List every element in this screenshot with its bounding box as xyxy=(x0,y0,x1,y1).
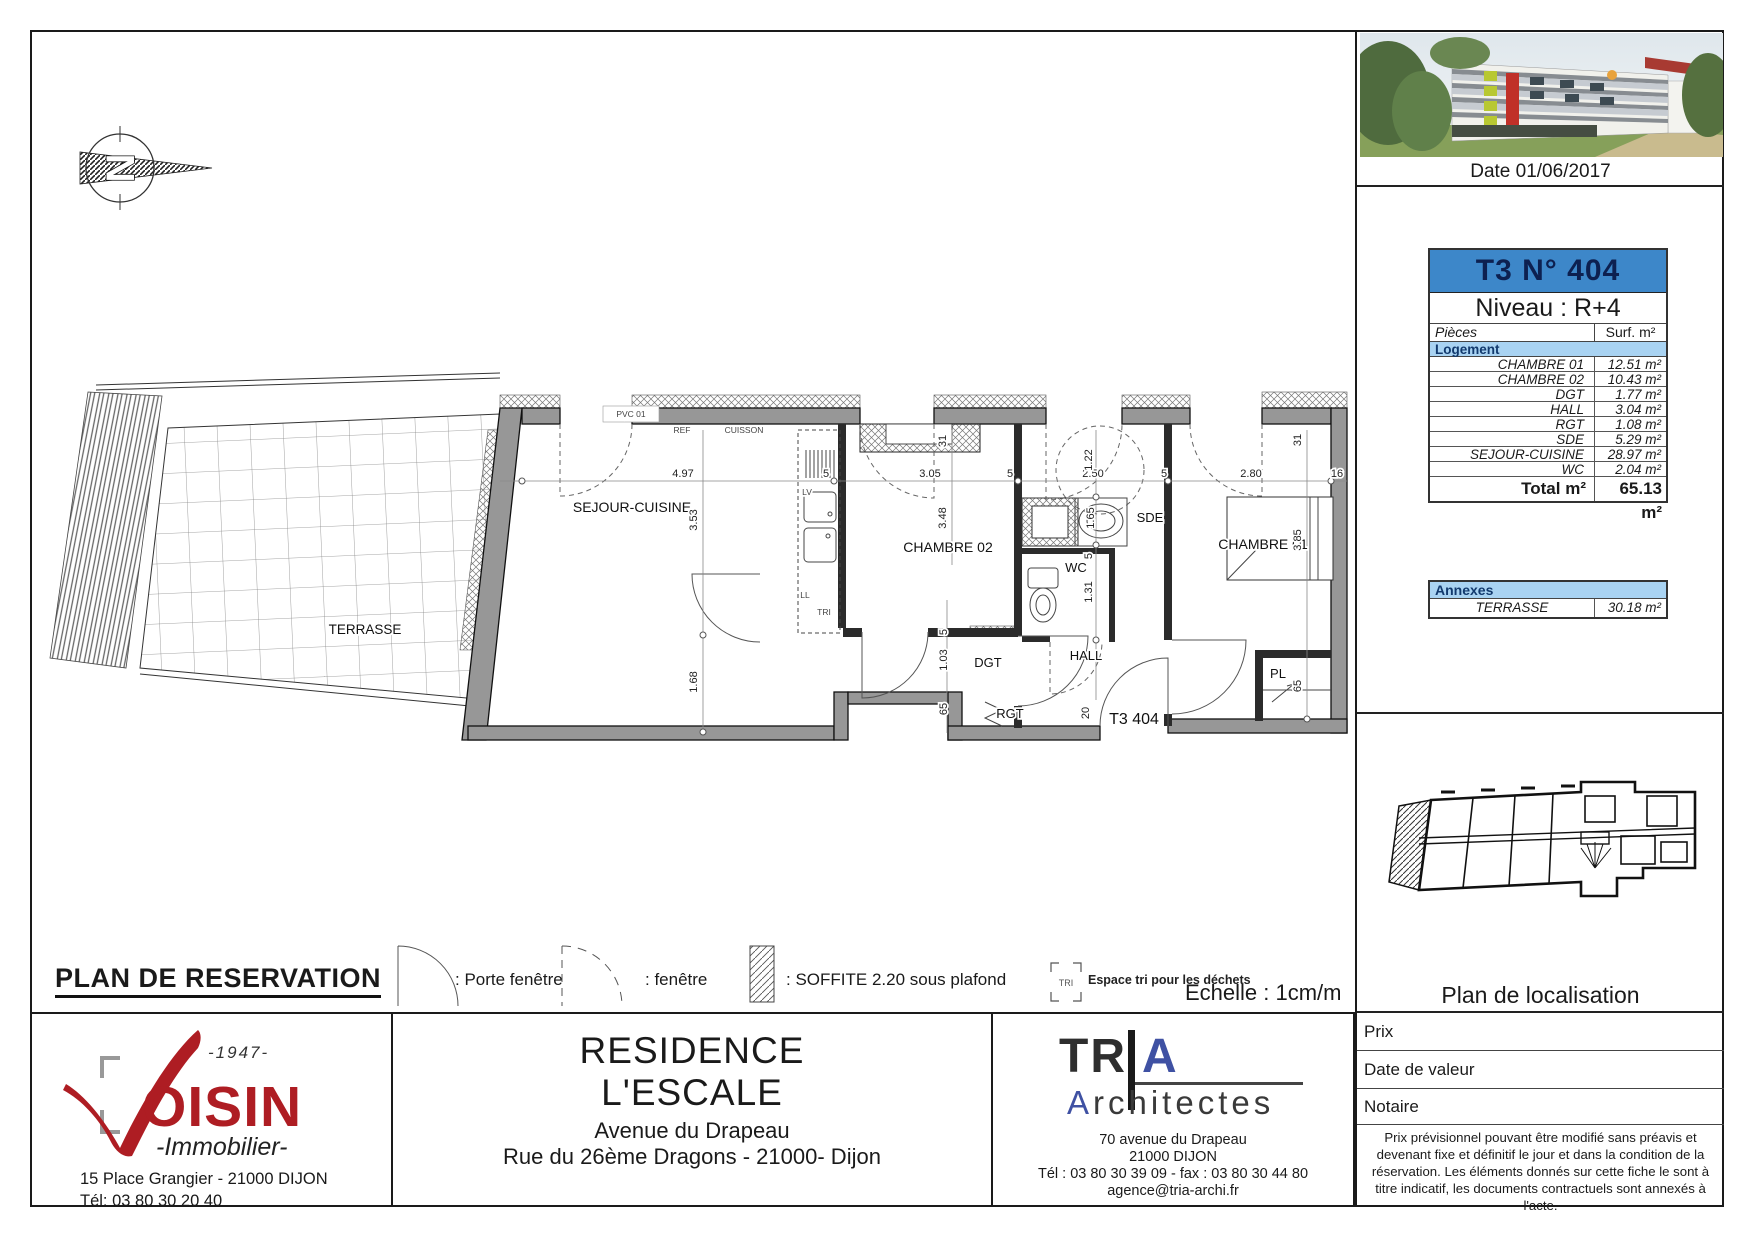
price-info-rows: PrixDate de valeurNotaire Prix prévision… xyxy=(1357,1011,1724,1207)
annotation: LV xyxy=(802,487,812,497)
dimension: 1.22 xyxy=(1083,449,1095,470)
table-row: HALL3.04 m² xyxy=(1430,402,1666,417)
room-name: SDE xyxy=(1430,432,1594,446)
dimension: 31 xyxy=(1292,434,1304,446)
room-name: DGT xyxy=(1430,387,1594,401)
dimension: 3.05 xyxy=(919,468,940,480)
unit-surface-table: T3 N° 404 Niveau : R+4 Pièces Surf. m² L… xyxy=(1428,248,1668,503)
fenetre-icon xyxy=(548,942,628,1008)
disclaimer-text: Prix prévisionnel pouvant être modifié s… xyxy=(1357,1125,1724,1214)
unit-level: Niveau : R+4 xyxy=(1430,293,1666,324)
voisin-block: -1947- OISIN -Immobilier- 15 Place Grang… xyxy=(30,1012,393,1207)
annotation: CUISSON xyxy=(725,425,764,435)
tri-icon: TRI xyxy=(1048,960,1084,1004)
annotation: LL xyxy=(800,590,810,600)
voisin-logo: -1947- OISIN -Immobilier- xyxy=(58,1022,368,1162)
svg-text:OISIN: OISIN xyxy=(142,1075,302,1139)
residence-block: RESIDENCE L'ESCALE Avenue du Drapeau Rue… xyxy=(393,1012,993,1207)
legend-soffite: : SOFFITE 2.20 sous plafond xyxy=(786,970,1006,990)
room-name: CHAMBRE 01 xyxy=(1430,357,1594,371)
room-name: SEJOUR-CUISINE xyxy=(1430,447,1594,461)
legend-porte-fenetre: : Porte fenêtre xyxy=(455,970,563,990)
svg-text:A: A xyxy=(1142,1030,1177,1083)
annotation: PVC 01 xyxy=(616,409,646,419)
dimension: 1.68 xyxy=(688,671,700,692)
dimension: 65 xyxy=(1292,680,1304,692)
tria-address-2: 21000 DIJON xyxy=(993,1149,1353,1165)
room-surface: 10.43 m² xyxy=(1594,372,1666,386)
door-arcs xyxy=(692,574,1246,726)
dimension: 4.97 xyxy=(672,468,693,480)
table-row: SEJOUR-CUISINE28.97 m² xyxy=(1430,447,1666,462)
exterior-walls xyxy=(462,408,1347,740)
location-plan xyxy=(1385,772,1707,912)
dimension: 16 xyxy=(1331,468,1343,480)
dimension: 20 xyxy=(1080,707,1092,719)
table-row: RGT1.08 m² xyxy=(1430,417,1666,432)
dimension-values: 4.9753.0552.5052.8016 xyxy=(672,468,1343,480)
terrace-area xyxy=(50,373,500,706)
svg-text:N: N xyxy=(99,154,143,183)
table-row: CHAMBRE 0112.51 m² xyxy=(1430,357,1666,372)
room-name: CHAMBRE 02 xyxy=(1430,372,1594,386)
dimension: 5 xyxy=(1083,553,1095,559)
room-label: SEJOUR-CUISINE xyxy=(573,499,691,515)
room-rows: CHAMBRE 0112.51 m²CHAMBRE 0210.43 m²DGT1… xyxy=(1430,357,1666,477)
tria-logo: TR A A rchitectes xyxy=(1041,1026,1307,1126)
unit-title: T3 N° 404 xyxy=(1430,250,1666,293)
tria-email: agence@tria-archi.fr xyxy=(993,1183,1353,1199)
total-value: 65.13 m² xyxy=(1594,477,1666,501)
room-surface: 1.08 m² xyxy=(1594,417,1666,431)
annexes-title: Annexes xyxy=(1430,582,1666,599)
legend-fenetre: : fenêtre xyxy=(645,970,707,990)
info-row-date-de-valeur: Date de valeur xyxy=(1357,1051,1724,1089)
col-surface: Surf. m² xyxy=(1594,324,1666,341)
room-label: PL xyxy=(1270,666,1286,681)
residence-address-2: Rue du 26ème Dragons - 21000- Dijon xyxy=(393,1144,991,1170)
residence-address-1: Avenue du Drapeau xyxy=(393,1118,991,1144)
svg-text:TR: TR xyxy=(1059,1030,1127,1083)
reservation-sheet: N xyxy=(0,0,1754,1240)
dimension: 5 xyxy=(1161,468,1167,480)
legend-tri: Espace tri pour les déchets xyxy=(1088,973,1251,987)
info-row-prix: Prix xyxy=(1357,1013,1724,1051)
room-surface: 30.18 m² xyxy=(1594,599,1666,617)
annotation: TRI xyxy=(817,607,831,617)
room-surface: 5.29 m² xyxy=(1594,432,1666,446)
table-row: CHAMBRE 0210.43 m² xyxy=(1430,372,1666,387)
room-surface: 28.97 m² xyxy=(1594,447,1666,461)
voisin-phone: Tél: 03 80 30 20 40 xyxy=(80,1192,222,1211)
table-row: DGT1.77 m² xyxy=(1430,387,1666,402)
dimension: 5 xyxy=(823,468,829,480)
info-panel: Date 01/06/2017 T3 N° 404 Niveau : R+4 P… xyxy=(1355,30,1724,1207)
dimension: 5 xyxy=(938,629,950,635)
dimension: 3.85 xyxy=(1292,529,1304,550)
room-label: T3 404 xyxy=(1109,711,1159,728)
dimension: 1.03 xyxy=(938,649,950,670)
residence-name-2: L'ESCALE xyxy=(393,1072,991,1114)
floor-plan-drawing: N xyxy=(30,30,1355,1012)
dimension: 65 xyxy=(938,703,950,715)
svg-text:A: A xyxy=(1067,1084,1089,1121)
residence-name-1: RESIDENCE xyxy=(393,1030,991,1072)
room-surface: 2.04 m² xyxy=(1594,462,1666,476)
dimension: 5 xyxy=(1007,468,1013,480)
soffite-icon xyxy=(748,944,778,1006)
tria-phone: Tél : 03 80 30 39 09 - fax : 03 80 30 44… xyxy=(993,1166,1353,1182)
room-surface: 3.04 m² xyxy=(1594,402,1666,416)
room-label: SDE xyxy=(1137,510,1164,525)
tria-address-1: 70 avenue du Drapeau xyxy=(993,1132,1353,1148)
total-label: Total m² xyxy=(1430,477,1594,501)
svg-text:-1947-: -1947- xyxy=(208,1043,269,1062)
room-label: RGT xyxy=(996,706,1024,721)
table-row: WC2.04 m² xyxy=(1430,462,1666,477)
room-label: TERRASSE xyxy=(329,622,402,637)
room-name: HALL xyxy=(1430,402,1594,416)
tria-block: TR A A rchitectes 70 avenue du Drapeau 2… xyxy=(993,1012,1355,1207)
annotation: REF xyxy=(674,425,691,435)
svg-text:TRI: TRI xyxy=(1059,978,1074,988)
dimension: 3.53 xyxy=(688,509,700,530)
dimension-values-vertical: 3.531.683.48311.221.651.3153.8531651.036… xyxy=(688,434,1304,719)
room-name: WC xyxy=(1430,462,1594,476)
dimension: 1.65 xyxy=(1085,507,1097,528)
room-label: HALL xyxy=(1070,648,1103,663)
room-surface: 12.51 m² xyxy=(1594,357,1666,371)
annexes-table: Annexes TERRASSE30.18 m² xyxy=(1428,580,1668,619)
dimension: 31 xyxy=(937,435,949,447)
north-arrow-icon: N xyxy=(80,126,212,210)
panel-divider xyxy=(1357,712,1724,714)
room-name: RGT xyxy=(1430,417,1594,431)
room-surface: 1.77 m² xyxy=(1594,387,1666,401)
room-label: WC xyxy=(1065,560,1087,575)
dimension: 3.48 xyxy=(937,507,949,528)
room-label: DGT xyxy=(974,655,1002,670)
table-row: TERRASSE30.18 m² xyxy=(1430,599,1666,617)
svg-text:rchitectes: rchitectes xyxy=(1093,1084,1274,1121)
dimension: 1.31 xyxy=(1083,581,1095,602)
window-arcs xyxy=(560,424,1262,694)
info-row-notaire: Notaire xyxy=(1357,1089,1724,1125)
building-photo xyxy=(1360,33,1723,157)
room-label: CHAMBRE 02 xyxy=(903,539,993,555)
svg-text:-Immobilier-: -Immobilier- xyxy=(156,1133,288,1161)
room-name: TERRASSE xyxy=(1430,599,1594,617)
porte-fenetre-icon xyxy=(390,942,462,1008)
location-plan-title: Plan de localisation xyxy=(1357,982,1724,1009)
dimension: 2.80 xyxy=(1240,468,1261,480)
plan-title: PLAN DE RESERVATION xyxy=(55,963,381,998)
date-label: Date 01/06/2017 xyxy=(1357,157,1724,187)
section-logement: Logement xyxy=(1430,342,1666,357)
voisin-address: 15 Place Grangier - 21000 DIJON xyxy=(80,1170,328,1189)
col-pieces: Pièces xyxy=(1430,324,1594,341)
table-row: SDE5.29 m² xyxy=(1430,432,1666,447)
